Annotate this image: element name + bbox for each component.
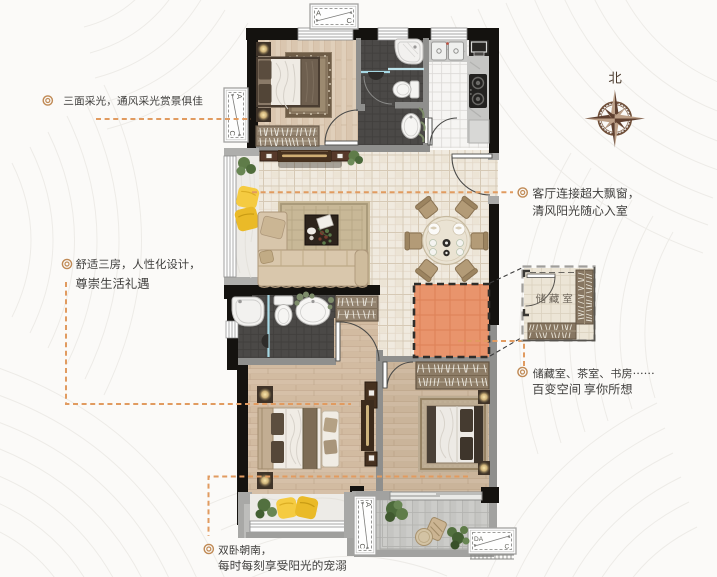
svg-text:C: C (347, 16, 353, 25)
svg-text:A: A (316, 9, 321, 18)
svg-text:C: C (228, 131, 237, 137)
svg-text:A: A (235, 94, 244, 99)
svg-text:A: A (364, 502, 373, 507)
svg-text:C: C (505, 544, 510, 551)
svg-text:DA: DA (474, 536, 484, 543)
svg-text:C: C (358, 544, 367, 550)
